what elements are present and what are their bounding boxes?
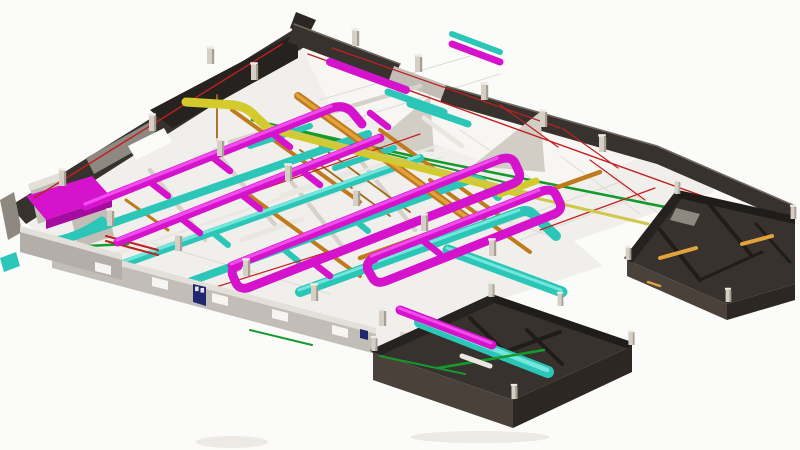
bim-scene-canvas: [0, 0, 800, 450]
shadow-blob: [196, 436, 268, 448]
door-pane: [195, 287, 199, 292]
bim-viewport: [0, 0, 800, 450]
shadow-blob: [410, 431, 550, 443]
door-pane: [201, 288, 205, 293]
